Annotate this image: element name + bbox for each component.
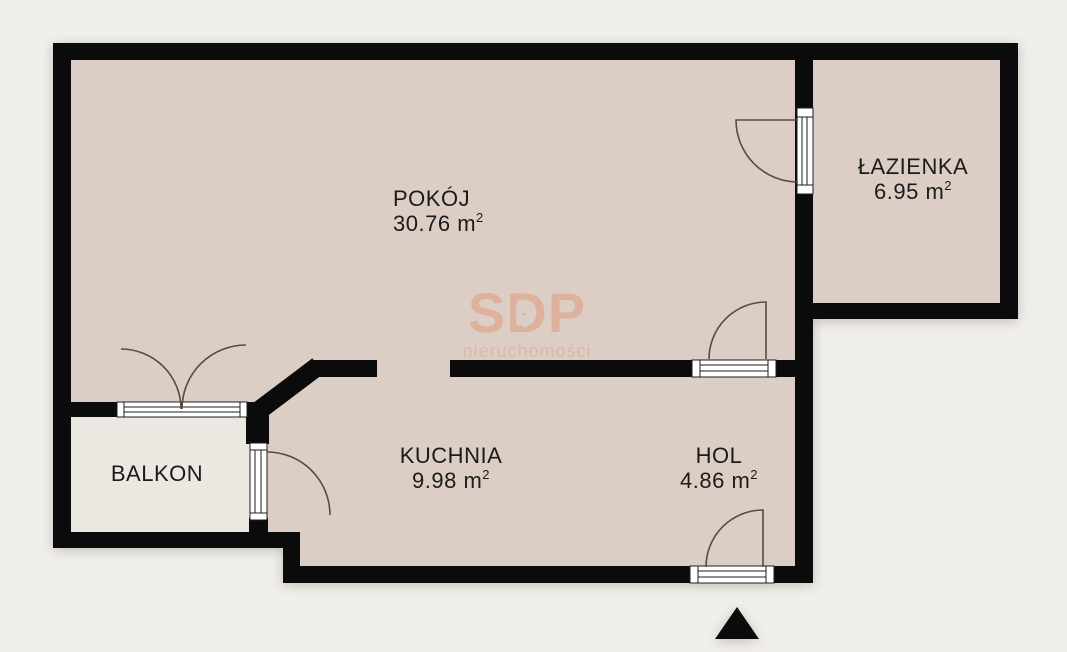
wall-top — [53, 43, 1018, 60]
room-label-balkon: BALKON — [82, 461, 232, 486]
room-area: 9.98 m2 — [376, 468, 526, 493]
room-area: 30.76 m2 — [393, 211, 484, 236]
floor-plan-canvas: SDP nieruchomości POKÓJ 30.76 m2 ŁAZIENK… — [0, 0, 1067, 652]
wall-balcony-top — [53, 402, 119, 417]
bathroom-door-frame — [797, 108, 813, 194]
room-name: POKÓJ — [393, 186, 470, 211]
entrance-door-frame — [690, 566, 774, 583]
wall-bathroom-bottom — [795, 303, 1018, 319]
room-label-lazienka: ŁAZIENKA 6.95 m2 — [838, 154, 988, 204]
room-label-kuchnia: KUCHNIA 9.98 m2 — [376, 443, 526, 493]
floor-plan-drawing — [0, 0, 1067, 652]
door-cutout-icon — [515, 299, 531, 329]
wall-bathroom-right — [1000, 43, 1018, 319]
entrance-marker-icon — [715, 607, 759, 639]
room-area: 6.95 m2 — [838, 179, 988, 204]
wall-pokoj-bottom-mid — [450, 360, 692, 377]
pokoj-door-frame — [692, 360, 776, 377]
wall-left — [53, 43, 71, 548]
wall-balcony-bottom — [53, 532, 300, 548]
room-name: KUCHNIA — [400, 443, 503, 468]
room-area: 4.86 m2 — [644, 468, 794, 493]
room-label-hol: HOL 4.86 m2 — [644, 443, 794, 493]
room-label-pokoj: POKÓJ 30.76 m2 — [393, 186, 484, 236]
balcony-door-frame — [250, 443, 267, 520]
room-name: HOL — [696, 443, 743, 468]
wall-pokoj-bottom-right — [775, 360, 797, 377]
room-name: ŁAZIENKA — [858, 154, 968, 179]
room-name: BALKON — [111, 461, 203, 486]
wall-balcony-corner — [246, 402, 269, 444]
